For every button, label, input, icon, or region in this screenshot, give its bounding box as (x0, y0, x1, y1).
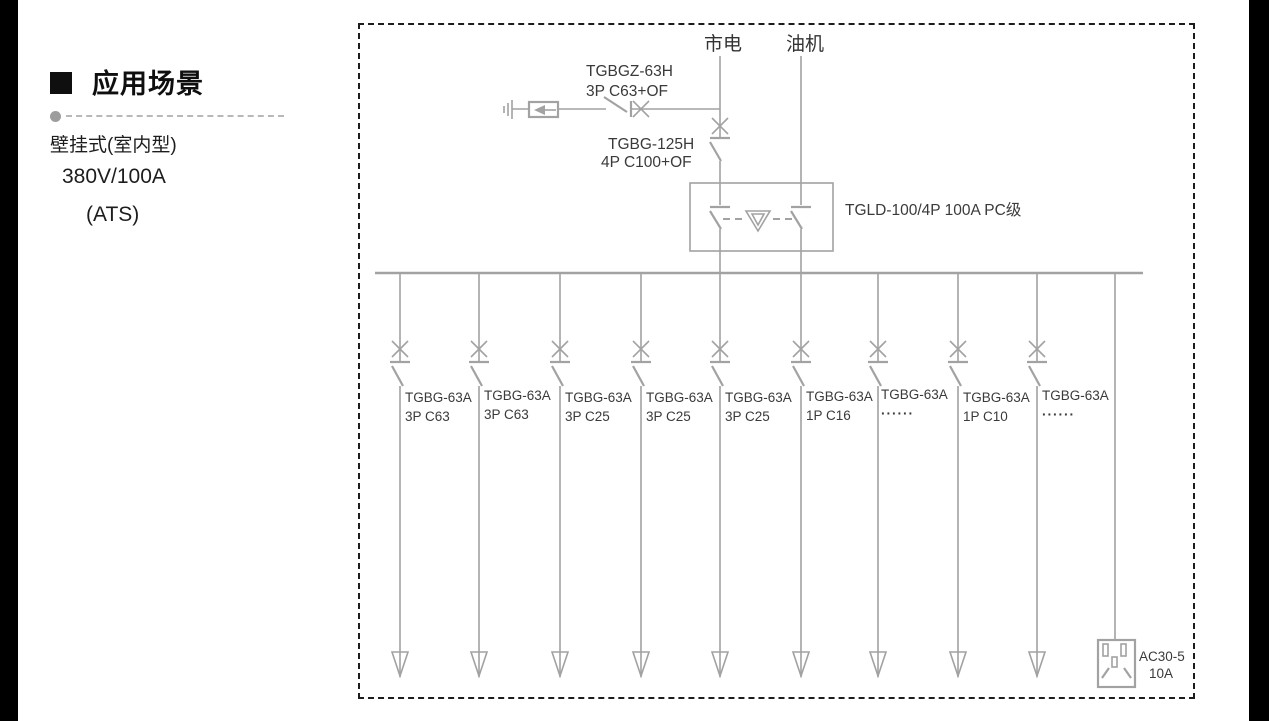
surge-breaker-spec-label: 3P C63+OF (586, 83, 668, 100)
branch-model-label: TGBG-63A (646, 390, 713, 405)
branch-feeder-9 (1027, 273, 1047, 677)
branch-spec-label: ······ (881, 406, 914, 421)
branch-spec-label: 3P C63 (405, 409, 450, 424)
branch-model-label: TGBG-63A (484, 388, 551, 403)
branch-feeder-5 (710, 273, 730, 677)
spd-arrow-icon (534, 105, 556, 115)
branch-spec-label: 3P C25 (646, 409, 691, 424)
branch-feeder-8 (948, 273, 968, 677)
branch-spec-label: ······ (1042, 407, 1075, 422)
generator-source-label: 油机 (786, 33, 824, 55)
branch-feeder-4 (631, 273, 651, 677)
ats-model-label: TGLD-100/4P 100A PC级 (845, 201, 1021, 219)
branch-feeder-1 (390, 273, 410, 677)
socket-model-label: AC30-5 (1139, 649, 1185, 664)
branch-spec-label: 1P C10 (963, 409, 1008, 424)
ground-icon (504, 100, 512, 119)
ats-right-switch-icon (791, 207, 811, 273)
branch-model-label: TGBG-63A (725, 390, 792, 405)
mains-source-label: 市电 (704, 33, 742, 55)
surge-breaker-model-label: TGBGZ-63H (586, 63, 673, 80)
branch-feeder-3 (550, 273, 570, 677)
main-breaker-spec-label: 4P C100+OF (601, 154, 692, 171)
branch-spec-label: 1P C16 (806, 408, 851, 423)
spd-breaker-switch-icon (604, 97, 649, 117)
branch-model-label: TGBG-63A (881, 387, 948, 402)
branch-feeder-2 (469, 273, 489, 677)
main-breaker-model-label: TGBG-125H (608, 136, 694, 153)
branch-model-label: TGBG-63A (806, 389, 873, 404)
ats-left-switch-icon (710, 207, 730, 273)
branch-spec-label: 3P C63 (484, 407, 529, 422)
branch-model-label: TGBG-63A (1042, 388, 1109, 403)
branch-spec-label: 3P C25 (565, 409, 610, 424)
ats-box (690, 183, 833, 273)
ats-mechanism-icon (723, 211, 792, 231)
socket-branch (1098, 273, 1135, 687)
branch-model-label: TGBG-63A (963, 390, 1030, 405)
branch-feeder-6 (791, 273, 811, 677)
single-line-diagram: 市电 油机 TGBGZ-63H (0, 0, 1269, 721)
branch-model-label: TGBG-63A (565, 390, 632, 405)
branch-spec-label: 3P C25 (725, 409, 770, 424)
socket-icon (1098, 640, 1135, 687)
surge-protector-branch (504, 97, 720, 119)
branch-model-label: TGBG-63A (405, 390, 472, 405)
branch-feeder-7 (868, 273, 888, 677)
socket-rating-label: 10A (1149, 666, 1173, 681)
